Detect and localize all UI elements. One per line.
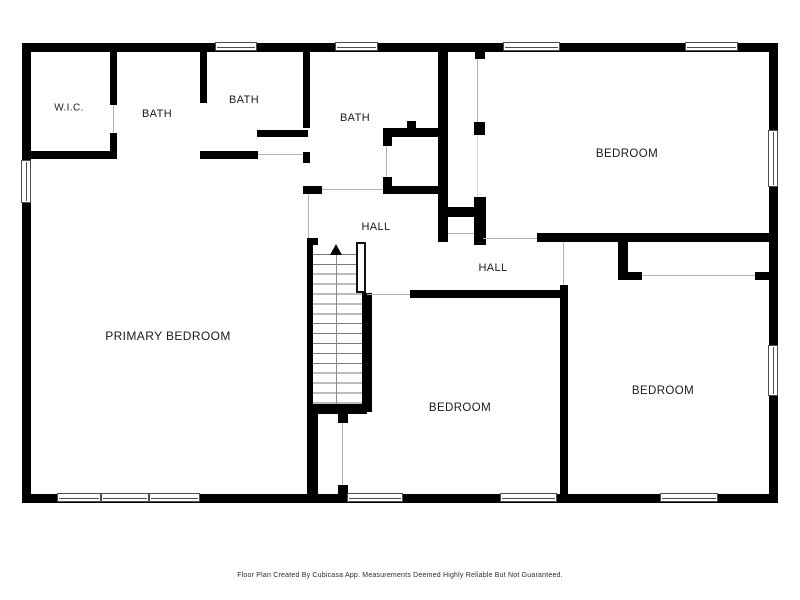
room-label-bath-2: BATH [229,94,259,106]
room-label-primary-bedroom: PRIMARY BEDROOM [105,329,231,343]
wall [383,177,392,186]
wall [383,128,440,137]
stair-rail [356,242,366,293]
room-label-wic: W.I.C. [54,103,84,114]
wall [303,186,322,194]
exterior-wall-top [22,43,778,52]
door-opening [342,423,343,485]
wall [110,51,117,105]
wall [200,151,258,159]
wall [383,137,392,146]
window [149,493,200,502]
wall [257,130,308,137]
wall [560,285,568,494]
room-label-bedroom-right: BEDROOM [632,385,694,397]
wall [200,51,207,103]
footer-disclaimer: Floor Plan Created By Cubicasa App. Meas… [0,572,800,579]
window [215,42,257,51]
closet-door-opening [642,275,755,276]
wall [362,293,372,412]
staircase-center-line [336,254,337,404]
wall [338,412,348,423]
door-opening [258,154,303,155]
room-label-bedroom-middle: BEDROOM [429,402,491,414]
door-opening [483,238,537,239]
door-opening [448,233,474,234]
door-opening [308,194,309,238]
window [347,493,403,502]
wall [475,50,485,59]
wall [383,186,440,194]
room-label-hall-2: HALL [478,262,507,274]
door-opening [386,146,387,177]
room-label-hall-1: HALL [361,221,390,233]
window [101,493,149,502]
window [335,42,378,51]
door-opening [113,105,114,133]
door-opening [477,59,478,122]
exterior-wall-left [22,43,31,503]
wall [303,152,310,163]
staircase [313,245,362,404]
window [21,160,31,203]
wall [537,233,778,242]
wall [410,290,568,298]
room-label-bedroom-top: BEDROOM [596,148,658,160]
stairs-up-arrow-icon [330,244,342,255]
wall [618,272,642,280]
window [57,493,101,502]
room-label-bath-1: BATH [142,108,172,120]
window [503,42,560,51]
window [768,345,778,396]
door-opening [477,135,478,197]
door-opening [322,189,383,190]
window [768,130,778,187]
room-label-bath-3: BATH [340,112,370,124]
window [685,42,738,51]
wall [755,272,769,280]
wall [303,43,310,128]
door-opening [563,242,564,285]
door-opening [367,294,410,295]
wall [22,151,117,159]
exterior-wall-right [769,43,778,503]
window [660,493,718,502]
wall [474,122,485,135]
wall [438,207,486,217]
window [500,493,557,502]
wall [407,121,416,129]
floor-plan: W.I.C. BATH BATH BATH BEDROOM HALL HALL … [0,0,800,600]
